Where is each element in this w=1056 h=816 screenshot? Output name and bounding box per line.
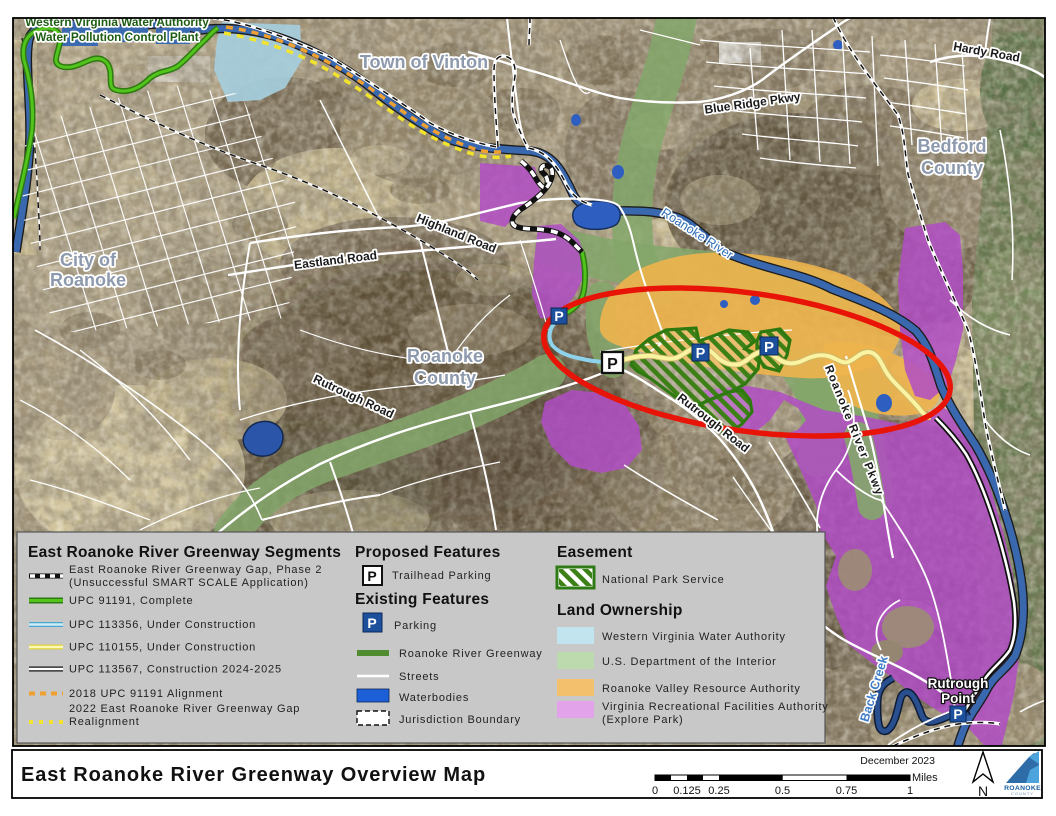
svg-text:(Explore Park): (Explore Park) — [602, 714, 684, 726]
svg-text:Streets: Streets — [399, 671, 439, 683]
svg-text:COUNTY: COUNTY — [1011, 791, 1034, 796]
svg-text:P: P — [607, 356, 618, 373]
svg-text:P: P — [953, 706, 962, 722]
svg-text:Roanoke: Roanoke — [407, 346, 483, 366]
svg-text:National Park Service: National Park Service — [602, 574, 725, 586]
svg-text:Land Ownership: Land Ownership — [557, 602, 683, 619]
svg-text:Parking: Parking — [394, 620, 437, 632]
svg-text:Realignment: Realignment — [69, 716, 140, 728]
svg-text:County: County — [414, 368, 476, 388]
svg-text:0.25: 0.25 — [708, 785, 729, 797]
svg-text:Rutrough: Rutrough — [928, 676, 989, 691]
svg-text:Point: Point — [941, 691, 975, 706]
svg-text:Water Pollution Control Plant: Water Pollution Control Plant — [35, 30, 198, 44]
svg-text:Roanoke River Greenway: Roanoke River Greenway — [399, 648, 543, 660]
svg-text:0.75: 0.75 — [836, 785, 857, 797]
svg-text:UPC 113567, Construction 2024-: UPC 113567, Construction 2024-2025 — [69, 664, 282, 676]
svg-text:(Unsuccessful SMART SCALE Appl: (Unsuccessful SMART SCALE Application) — [69, 577, 309, 589]
svg-text:Existing Features: Existing Features — [355, 591, 489, 608]
svg-text:U.S. Department of the Interio: U.S. Department of the Interior — [602, 656, 777, 668]
svg-text:UPC 113356, Under Construction: UPC 113356, Under Construction — [69, 619, 256, 631]
svg-text:Jurisdiction Boundary: Jurisdiction Boundary — [399, 714, 521, 726]
svg-text:East Roanoke River Greenway Se: East Roanoke River Greenway Segments — [28, 544, 341, 561]
svg-text:0: 0 — [652, 785, 658, 797]
svg-text:P: P — [367, 568, 377, 584]
svg-text:Roanoke: Roanoke — [50, 270, 126, 290]
svg-text:East Roanoke River Greenway Ov: East Roanoke River Greenway Overview Map — [21, 764, 486, 786]
svg-text:Town of Vinton: Town of Vinton — [360, 52, 488, 72]
svg-text:N: N — [978, 783, 988, 799]
svg-text:Easement: Easement — [557, 544, 633, 561]
svg-text:December 2023: December 2023 — [860, 755, 935, 767]
svg-text:UPC 91191, Complete: UPC 91191, Complete — [69, 595, 193, 607]
svg-text:P: P — [764, 339, 774, 356]
svg-text:East Roanoke River Greenway Ga: East Roanoke River Greenway Gap, Phase 2 — [69, 564, 322, 576]
svg-text:County: County — [921, 158, 983, 178]
svg-text:P: P — [554, 308, 563, 324]
svg-text:Virginia Recreational Faciliti: Virginia Recreational Facilities Authori… — [602, 701, 829, 713]
svg-text:P: P — [367, 615, 377, 631]
svg-text:Roanoke Valley Resource Author: Roanoke Valley Resource Authority — [602, 683, 801, 695]
svg-text:Waterbodies: Waterbodies — [399, 692, 469, 704]
svg-text:Bedford: Bedford — [918, 136, 987, 156]
svg-text:Trailhead Parking: Trailhead Parking — [392, 570, 491, 582]
svg-text:P: P — [696, 346, 706, 362]
svg-text:1: 1 — [907, 785, 913, 797]
svg-text:0.125: 0.125 — [673, 785, 701, 797]
svg-text:Western Virginia Water Authori: Western Virginia Water Authority — [602, 631, 786, 643]
svg-text:Miles: Miles — [912, 772, 938, 784]
svg-text:2022 East Roanoke River Greenw: 2022 East Roanoke River Greenway Gap — [69, 703, 300, 715]
svg-text:City of: City of — [60, 250, 117, 270]
svg-text:2018 UPC 91191 Alignment: 2018 UPC 91191 Alignment — [69, 688, 223, 700]
svg-text:Proposed Features: Proposed Features — [355, 544, 501, 561]
svg-text:UPC 110155, Under Construction: UPC 110155, Under Construction — [69, 642, 256, 654]
svg-text:0.5: 0.5 — [775, 785, 790, 797]
